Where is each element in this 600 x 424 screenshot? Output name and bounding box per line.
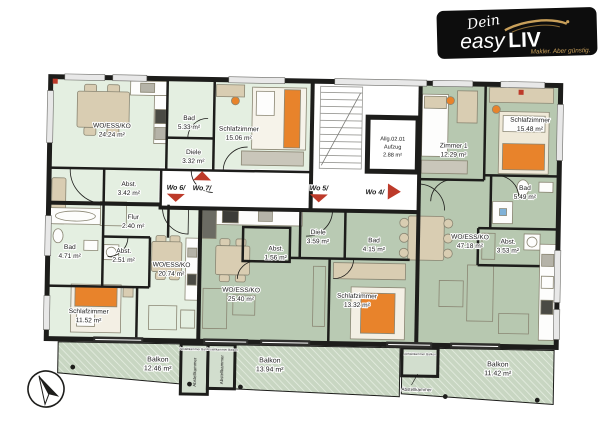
room-area-wo7-abst: 3.42 m² [118, 190, 141, 197]
room-label-wo6-flur: Flur [128, 214, 140, 221]
floorplan-canvas: Allg.02.01 Aufzug 2.88 m² [0, 0, 600, 424]
elevator-label-1: Allg.02.01 [380, 136, 405, 142]
storage-caption-right: Abstellkammer Balkon [404, 352, 436, 357]
room-label-wo5-schlaf: Schlafzimmer [337, 293, 378, 301]
elevator: Allg.02.01 Aufzug 2.88 m² [367, 117, 418, 172]
room-area-wo5-schlaf: 13.32 m² [344, 302, 371, 309]
room-area-wo6-abst: 2.51 m² [112, 257, 135, 264]
room-area-wo5-bad: 4.15 m² [363, 246, 386, 253]
marker-wo7-label: Wo 7/ [193, 185, 213, 192]
room-area-wo4-living: 47.18 m² [457, 243, 484, 250]
room-area-wo4-zimmer1: 12.29 m² [440, 151, 467, 158]
room-area-wo4-bad: 5.49 m² [514, 194, 537, 201]
balcony-right-label: Balkon [487, 361, 509, 368]
room-area-wo5-diele: 3.59 m² [307, 238, 330, 245]
room-label-wo5-bad: Bad [368, 237, 380, 244]
room-area-wo6-schlaf: 11.52 m² [76, 317, 102, 324]
room-area-wo5-abst: 1.56 m² [264, 254, 287, 261]
storage-caption-2: Abstellkammer Balkon [206, 347, 238, 352]
marker-wo4-label: Wo 4/ [366, 189, 386, 196]
room-label-wo4-living: WO/ESS/KO [451, 234, 489, 242]
room-label-wo4-schlaf: Schlafzimmer [510, 117, 551, 125]
room-area-wo6-living: 20.74 m² [158, 271, 185, 278]
room-area-wo7-bad: 5.33 m² [178, 124, 201, 131]
logo-easy-text: easy [460, 29, 506, 53]
room-label-wo6-living: WO/ESS/KO [153, 261, 191, 269]
marker-wo5-label: Wo 5/ [310, 185, 330, 192]
room-label-wo5-living: WO/ESS/KO [222, 287, 260, 295]
balcony-middle-label: Balkon [259, 357, 281, 364]
room-label-wo6-bad: Bad [64, 244, 76, 251]
room-area-wo4-abst: 3.53 m² [497, 247, 520, 254]
easyliv-logo: Dein easy LIV Makler. Aber günstig. [436, 7, 597, 59]
room-label-wo7-living: WO/ESS/KO [93, 122, 131, 130]
room-label-wo4-zimmer1: Zimmer 1 [440, 142, 468, 149]
storage-vertical-label-1: Abstellkammer [192, 357, 198, 387]
room-area-wo7-living: 24.24 m² [99, 131, 126, 138]
room-label-wo6-schlaf: Schlafzimmer [69, 308, 110, 316]
room-label-wo7-diele: Diele [186, 149, 201, 156]
balcony-left-label: Balkon [147, 356, 169, 363]
room-label-wo7-abst: Abst. [121, 181, 136, 188]
floorplan-svg: Allg.02.01 Aufzug 2.88 m² [0, 0, 600, 424]
elevator-label-3: 2.88 m² [383, 152, 402, 158]
room-area-wo6-flur: 2.40 m² [122, 223, 145, 230]
room-label-wo5-diele: Diele [311, 229, 326, 236]
red-marker-icon [53, 79, 58, 84]
red-marker-icon [519, 90, 524, 95]
elevator-label-2: Aufzug [384, 144, 402, 150]
room-label-wo7-bad: Bad [183, 115, 195, 122]
room-label-wo4-abst: Abst. [500, 238, 515, 245]
room-label-wo5-abst: Abst. [268, 245, 283, 252]
room-area-wo5-living: 25.40 m² [228, 296, 255, 303]
floorplan-group: Allg.02.01 Aufzug 2.88 m² [42, 74, 564, 405]
room-area-wo7-schlaf: 15.06 m² [226, 135, 253, 142]
room-area-wo6-bad: 4.71 m² [58, 253, 81, 260]
balcony-left-area: 12.46 m² [144, 365, 172, 372]
room-label-wo4-bad: Bad [519, 185, 531, 192]
room-label-wo7-schlaf: Schlafzimmer [219, 126, 260, 134]
balcony-right-area: 11.42 m² [484, 370, 512, 377]
room-area-wo4-schlaf: 15.48 m² [517, 126, 544, 133]
marker-wo6-label: Wo 6/ [167, 185, 187, 192]
storage-vertical-label-2: Abstellkammer [219, 355, 225, 385]
room-label-wo6-abst: Abst. [116, 248, 131, 255]
room-area-wo7-diele: 3.32 m² [182, 158, 205, 165]
balcony-middle-area: 13.94 m² [256, 366, 284, 373]
storage-pointer-label: Abstellkammer [401, 387, 432, 393]
